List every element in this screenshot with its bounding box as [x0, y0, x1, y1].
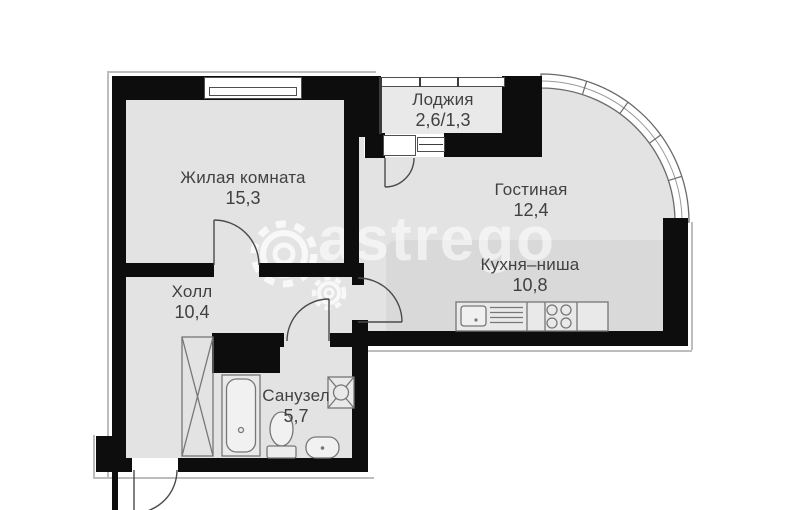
bathtub	[222, 375, 260, 456]
room-area: 5,7	[262, 405, 330, 426]
door-hall-kitchen	[358, 278, 402, 322]
room-label-zhilaya: Жилая комната 15,3	[180, 168, 305, 208]
floor-plan: astrego	[0, 0, 800, 510]
washing-machine	[328, 377, 354, 408]
room-name: Гостиная	[495, 180, 568, 200]
room-name: Холл	[172, 282, 213, 302]
room-name: Кухня–ниша	[481, 255, 580, 275]
room-name: Санузел	[262, 386, 330, 406]
room-label-hall: Холл 10,4	[172, 282, 213, 322]
wardrobe	[182, 337, 213, 456]
kitchen-counter	[456, 302, 608, 331]
room-area: 10,4	[172, 301, 213, 322]
room-area: 15,3	[180, 187, 305, 208]
room-area: 10,8	[481, 274, 580, 295]
wash-basin	[306, 437, 339, 458]
door-bathroom	[287, 299, 329, 341]
room-name: Жилая комната	[180, 168, 305, 188]
room-label-loggia: Лоджия 2,6/1,3	[412, 90, 473, 130]
door-livingroom	[214, 220, 259, 265]
room-name: Лоджия	[412, 90, 473, 110]
room-area: 2,6/1,3	[412, 109, 473, 130]
room-label-kitchen: Кухня–ниша 10,8	[481, 255, 580, 295]
door-entrance	[134, 470, 177, 510]
room-label-sanuzel: Санузел 5,7	[262, 386, 330, 426]
room-area: 12,4	[495, 199, 568, 220]
fixtures-layer	[0, 0, 800, 510]
kitchen-sink	[461, 306, 486, 326]
door-balcony	[385, 158, 414, 187]
room-label-gostinaya: Гостиная 12,4	[495, 180, 568, 220]
